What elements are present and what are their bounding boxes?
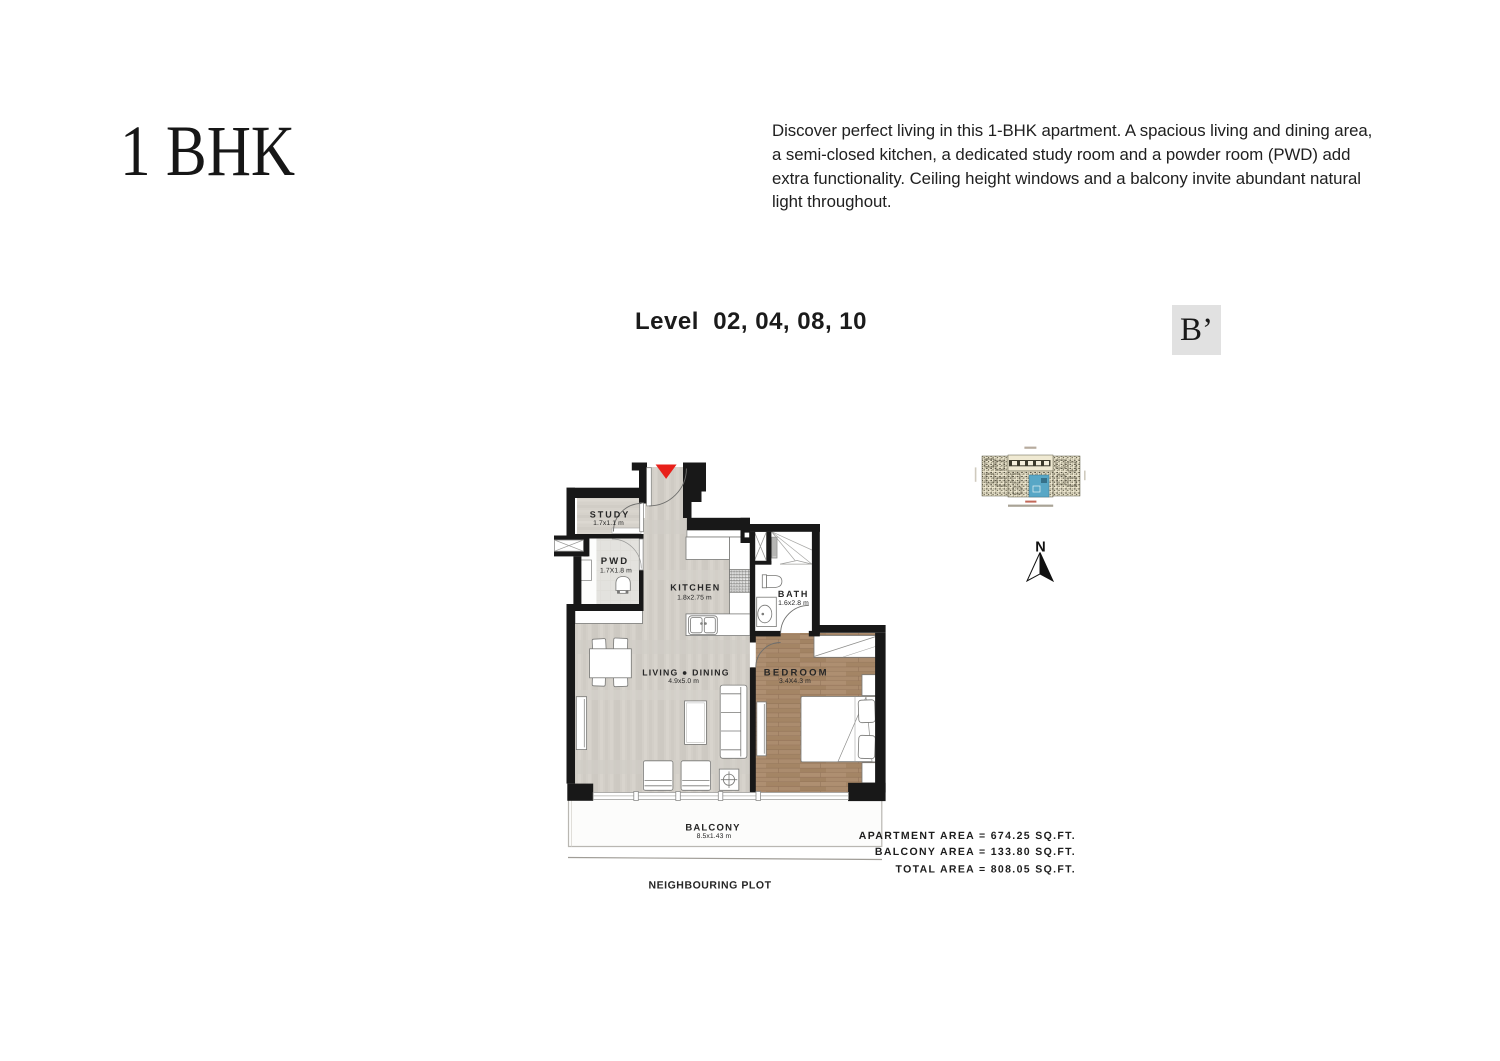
svg-text:NEIGHBOURING PLOT: NEIGHBOURING PLOT: [648, 879, 771, 891]
svg-text:LIVING ● DINING: LIVING ● DINING: [642, 668, 729, 678]
svg-text:PWD: PWD: [601, 556, 629, 567]
svg-text:1.8x2.75 m: 1.8x2.75 m: [677, 595, 712, 602]
svg-text:APARTMENT AREA = 674.25 SQ.FT.: APARTMENT AREA = 674.25 SQ.FT.: [859, 830, 1076, 842]
svg-text:TOTAL AREA = 808.05 SQ.FT.: TOTAL AREA = 808.05 SQ.FT.: [896, 863, 1077, 875]
svg-text:8.5x1.43 m: 8.5x1.43 m: [697, 833, 732, 840]
svg-text:1.6x2.8 m: 1.6x2.8 m: [778, 600, 809, 607]
svg-text:1.7x1.1 m: 1.7x1.1 m: [593, 520, 624, 527]
svg-text:4.9x5.0 m: 4.9x5.0 m: [668, 678, 699, 685]
svg-text:BALCONY: BALCONY: [685, 822, 740, 833]
svg-text:STUDY: STUDY: [590, 510, 631, 520]
svg-text:BATH: BATH: [778, 589, 809, 599]
svg-text:KITCHEN: KITCHEN: [670, 583, 721, 593]
svg-text:3.4X4.3 m: 3.4X4.3 m: [779, 678, 811, 685]
svg-text:1.7X1.8 m: 1.7X1.8 m: [600, 567, 632, 574]
svg-text:BALCONY AREA = 133.80 SQ.FT.: BALCONY AREA = 133.80 SQ.FT.: [875, 846, 1076, 858]
